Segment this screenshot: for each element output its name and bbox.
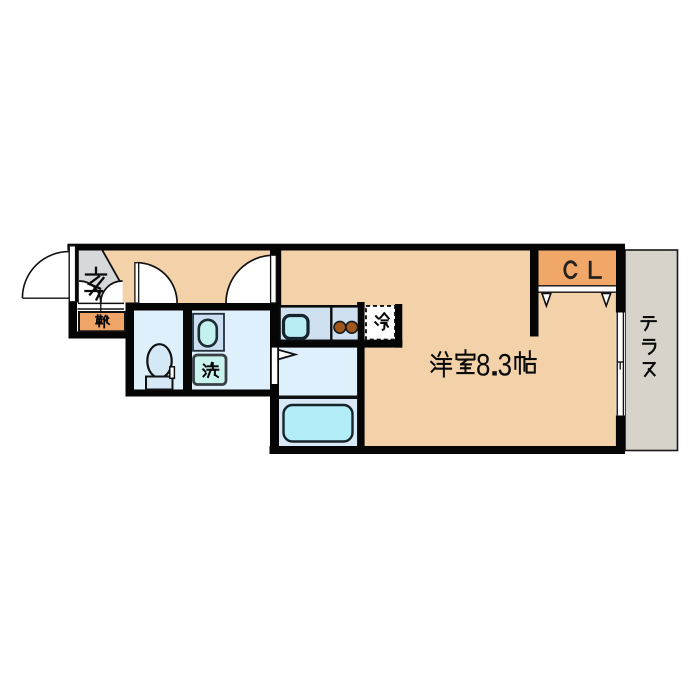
svg-text:8.3: 8.3 bbox=[476, 347, 512, 383]
